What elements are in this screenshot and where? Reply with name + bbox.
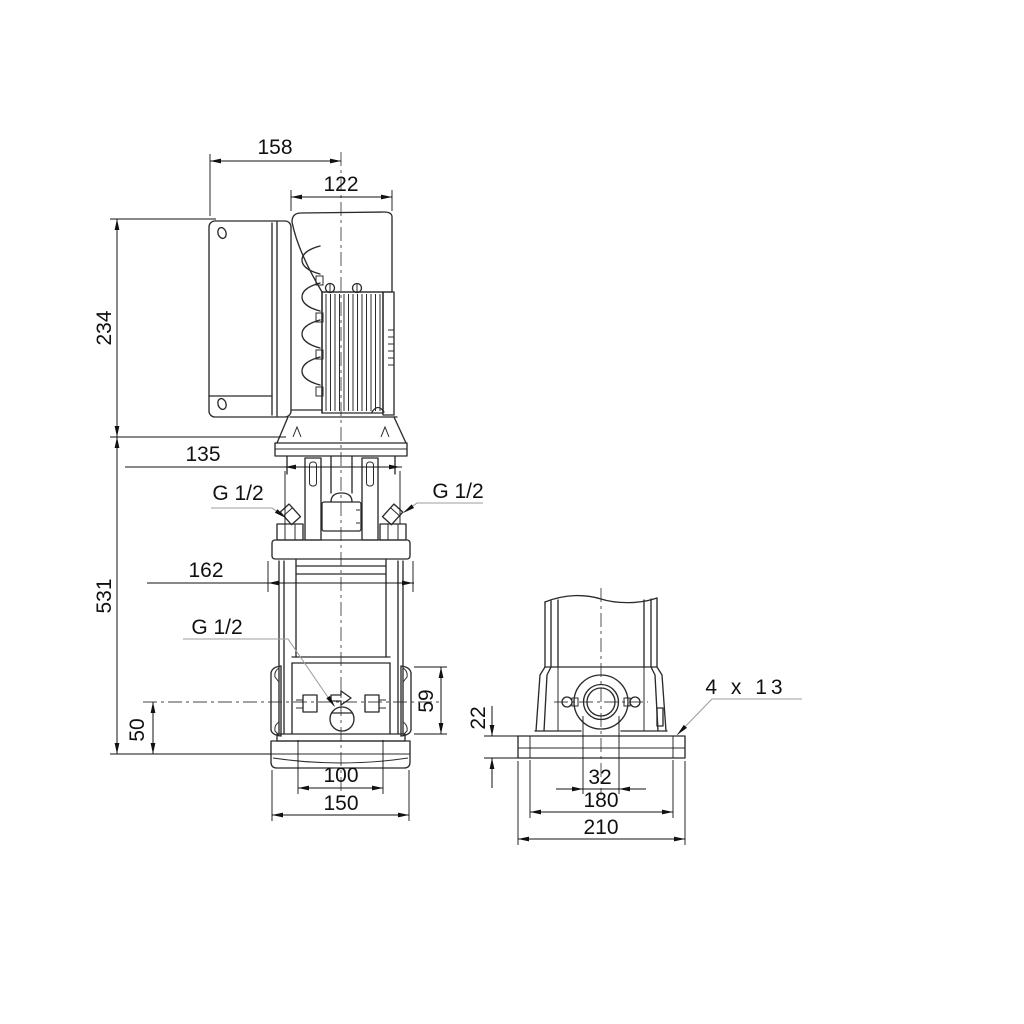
dim-base-bolt-spacing-front: 180 bbox=[583, 789, 618, 812]
dim-base-width-front: 210 bbox=[583, 816, 618, 839]
gauge-plug-left bbox=[280, 504, 300, 525]
side-view bbox=[143, 152, 440, 796]
dim-port-flange-height: 59 bbox=[415, 689, 438, 712]
dim-base-plate-height: 22 bbox=[467, 706, 490, 729]
front-base-plate bbox=[518, 736, 685, 758]
label-foundation-holes: 4 x 13 bbox=[705, 676, 786, 699]
label-gauge-port-left: G 1/2 bbox=[212, 482, 263, 505]
dim-head-flange-width: 162 bbox=[188, 559, 223, 582]
front-view bbox=[518, 588, 685, 795]
coupling-guard-right bbox=[362, 458, 378, 540]
dim-motor-height: 234 bbox=[93, 310, 116, 345]
dim-base-width-side: 150 bbox=[323, 792, 358, 815]
motor-end-cap bbox=[383, 292, 394, 415]
cable-entry bbox=[372, 408, 384, 413]
label-gauge-port-right: G 1/2 bbox=[432, 480, 483, 503]
dim-adapter-width: 135 bbox=[185, 443, 220, 466]
motor-housing-profile bbox=[291, 246, 323, 413]
technical-drawing: 158 122 234 531 135 162 G 1/2 G 1/2 G 1/… bbox=[0, 0, 1024, 1024]
dim-port-height: 50 bbox=[126, 718, 149, 741]
leader-lines bbox=[183, 503, 802, 735]
drain-plug bbox=[330, 691, 354, 731]
motor-control-box bbox=[209, 221, 291, 417]
dim-pump-height: 531 bbox=[93, 578, 116, 613]
coupling-box bbox=[322, 502, 361, 531]
coupling-section bbox=[305, 456, 378, 540]
vent-mark-right bbox=[381, 427, 389, 437]
leader-arrow-right-plug bbox=[403, 504, 414, 513]
leader-arrow-left-plug bbox=[275, 509, 286, 518]
housing-hole-bottom bbox=[216, 398, 227, 411]
label-drain-port: G 1/2 bbox=[191, 616, 242, 639]
vent-mark-left bbox=[293, 427, 301, 437]
side-view-base bbox=[271, 734, 410, 768]
motor-fins bbox=[322, 284, 384, 414]
shaft-dome bbox=[331, 493, 352, 502]
head-nuts bbox=[277, 524, 406, 540]
drawing-canvas: 158 122 234 531 135 162 G 1/2 G 1/2 G 1/… bbox=[0, 0, 1024, 1024]
dim-port-bore: 32 bbox=[588, 766, 611, 789]
front-view-centerlines bbox=[554, 588, 648, 795]
coupling-guard-left bbox=[305, 458, 321, 540]
dim-control-box-width: 158 bbox=[257, 136, 292, 159]
dim-motor-width: 122 bbox=[323, 173, 358, 196]
housing-hole-top bbox=[216, 227, 227, 240]
dim-base-bolt-spacing-side: 100 bbox=[323, 764, 358, 787]
